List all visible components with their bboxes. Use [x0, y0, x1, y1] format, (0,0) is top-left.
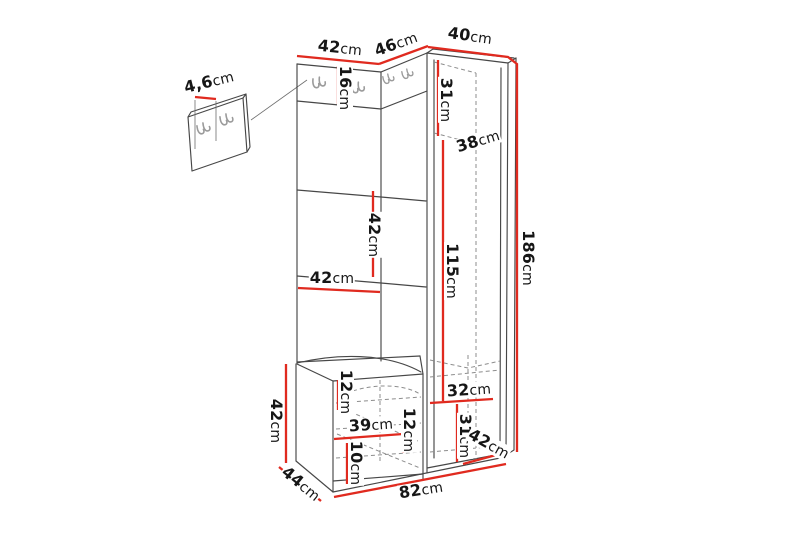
- left-panel-section: [297, 64, 426, 363]
- dimension-label-bench-middle-space: 12cm: [401, 407, 417, 453]
- dimension-label-bench-interior-width: 39cm: [347, 415, 394, 434]
- dimension-label-wardrobe-interior-width: 32cm: [445, 380, 492, 399]
- dimension-label-hanging-space-height: 115cm: [444, 242, 460, 300]
- coat-hook-icon: [401, 68, 414, 80]
- dimension-label-bench-bottom-space: 10cm: [348, 440, 364, 486]
- dimension-label-wardrobe-upper-space: 31cm: [438, 77, 454, 123]
- coat-hook-icon: [196, 121, 211, 134]
- dimension-label-panel-middle-section-height: 42cm: [366, 212, 382, 258]
- dimension-label-hook-strip-height: 16cm: [337, 65, 353, 111]
- leader-line: [251, 80, 307, 120]
- dimension-label-top-panel-width: 42cm: [316, 38, 364, 59]
- coat-hook-icon: [382, 73, 395, 85]
- dimension-label-bench-height: 42cm: [268, 398, 284, 444]
- dimension-label-total-height: 186cm: [520, 229, 536, 287]
- dimension-label-panel-middle-width: 42cm: [309, 270, 355, 286]
- dimension-label-bench-seat-thickness: 12cm: [338, 369, 354, 415]
- coat-hook-icon: [313, 77, 326, 88]
- furniture-line-drawing: [0, 0, 800, 533]
- coat-hook-icon: [219, 112, 234, 125]
- furniture-dimension-diagram: 42cm 46cm 40cm 16cm 4,6cm 31cm 38cm 42cm…: [0, 0, 800, 533]
- wall-hook-panel: [188, 94, 250, 171]
